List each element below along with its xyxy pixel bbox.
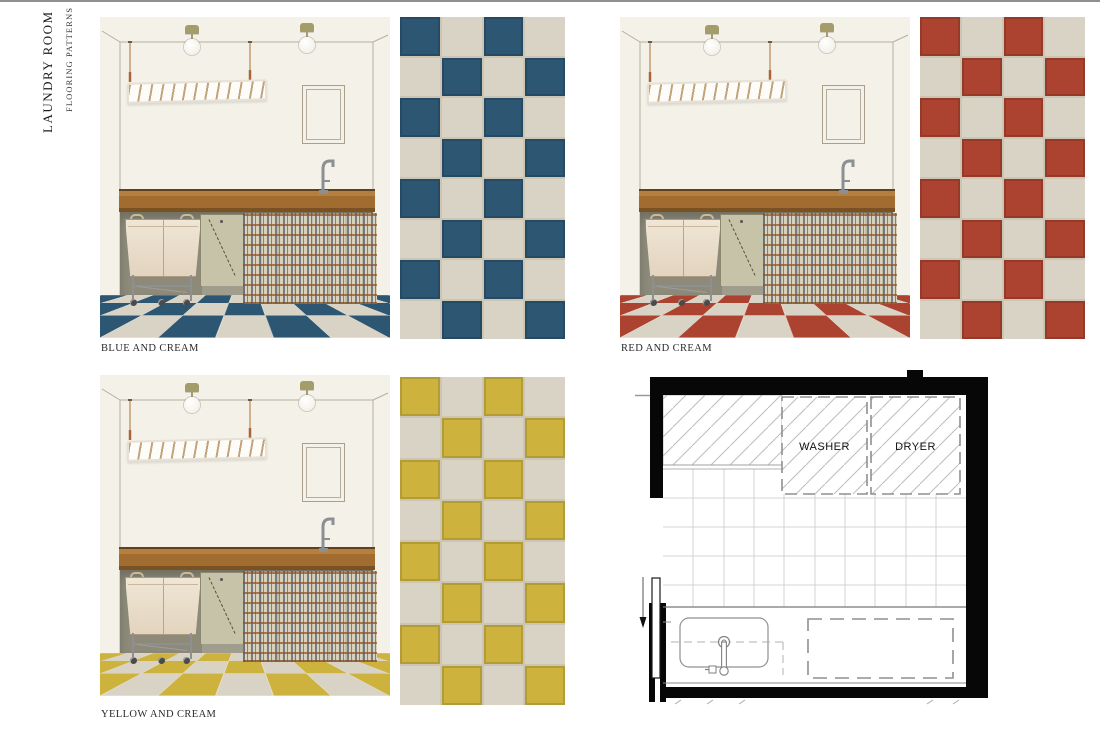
light-globe	[704, 39, 720, 55]
page-title: LAUNDRY ROOM	[40, 10, 56, 133]
cabinet-door	[720, 214, 764, 287]
swatch-tile	[442, 139, 482, 178]
swatch-tile	[484, 418, 524, 457]
cabinet-keyhole	[220, 220, 223, 223]
caster-wheel	[650, 299, 657, 306]
swatch-tile	[1004, 139, 1044, 178]
caster-wheel	[183, 657, 190, 664]
light-globe	[299, 395, 315, 411]
swatch-tile	[442, 220, 482, 259]
picture-frame	[302, 443, 345, 502]
plan-hatch-ticks	[675, 700, 959, 704]
swatch-tile	[525, 501, 565, 540]
caster-wheel	[158, 299, 165, 306]
swatch-tile	[484, 139, 524, 178]
caster-wheel	[130, 299, 137, 306]
light-fixture-cap	[300, 381, 314, 390]
swatch-tile	[525, 17, 565, 56]
presentation-board: LAUNDRY ROOM FLOORING PATTERNS	[0, 0, 1100, 734]
swatch-tile	[962, 17, 1002, 56]
swatch-tile	[442, 418, 482, 457]
plan-cabinet-dashed	[808, 619, 953, 678]
swatch-tile	[442, 625, 482, 664]
swatch-tile	[920, 301, 960, 340]
light-fixture-cap	[820, 23, 834, 32]
under-counter-curtain	[243, 571, 377, 662]
caster-wheel	[183, 299, 190, 306]
swatch-tile	[1045, 17, 1085, 56]
room-rendering-red	[620, 17, 910, 338]
swatch-tile	[400, 139, 440, 178]
hamper-canvas-bag	[645, 219, 721, 277]
swatch-tile	[920, 260, 960, 299]
swatch-tile	[920, 17, 960, 56]
tile-swatch-yellow	[400, 377, 565, 705]
swatch-tile	[525, 666, 565, 705]
swatch-tile	[962, 58, 1002, 97]
swatch-tile	[1004, 301, 1044, 340]
swatch-tile	[400, 625, 440, 664]
swatch-tile	[525, 460, 565, 499]
swatch-tile	[1045, 98, 1085, 137]
ceiling-light	[297, 23, 317, 55]
swatch-tile	[1004, 98, 1044, 137]
swatch-tile	[1004, 260, 1044, 299]
hanging-drying-rack	[127, 437, 267, 462]
swatch-tile	[1045, 139, 1085, 178]
plan-sink	[663, 618, 783, 675]
swatch-tile	[484, 460, 524, 499]
swatch-tile	[442, 179, 482, 218]
swatch-tile	[400, 583, 440, 622]
light-globe	[819, 37, 835, 53]
swatch-tile	[525, 139, 565, 178]
swatch-tile	[400, 501, 440, 540]
under-counter-curtain	[243, 213, 377, 304]
swatch-tile	[442, 542, 482, 581]
light-fixture-cap	[185, 25, 199, 34]
swatch-tile	[484, 179, 524, 218]
ceiling-light	[182, 25, 202, 57]
cabinet-door-swing-line	[208, 577, 235, 634]
swatch-tile	[442, 583, 482, 622]
tile-swatch-blue	[400, 17, 565, 339]
plan-dryer: DRYER	[871, 397, 960, 494]
swatch-tile	[525, 542, 565, 581]
swatch-tile	[442, 98, 482, 137]
faucet	[833, 155, 859, 195]
swatch-tile	[484, 301, 524, 340]
hamper-canvas-bag	[125, 219, 201, 277]
swatch-tile	[484, 220, 524, 259]
washer-label: WASHER	[799, 441, 850, 453]
light-globe	[184, 39, 200, 55]
swatch-tile	[525, 220, 565, 259]
plan-counter-hatched	[663, 395, 782, 469]
plan-washer: WASHER	[782, 397, 867, 494]
hamper-cart-frame	[132, 275, 192, 301]
ceiling-light	[817, 23, 837, 55]
swatch-tile	[400, 98, 440, 137]
swatch-tile	[484, 583, 524, 622]
swatch-tile	[442, 501, 482, 540]
swatch-tile	[1004, 58, 1044, 97]
swatch-tile	[484, 542, 524, 581]
swatch-tile	[400, 666, 440, 705]
swatch-tile	[442, 17, 482, 56]
swatch-tile	[1045, 301, 1085, 340]
light-globe	[299, 37, 315, 53]
ceiling-light	[297, 381, 317, 413]
swatch-tile	[1045, 220, 1085, 259]
cabinet-door	[200, 214, 244, 287]
hamper-canvas-bag	[125, 577, 201, 635]
swatch-tile	[525, 58, 565, 97]
swatch-tile	[442, 460, 482, 499]
swatch-tile	[400, 58, 440, 97]
swatch-tile	[962, 301, 1002, 340]
caster-wheel	[703, 299, 710, 306]
swatch-tile	[400, 418, 440, 457]
swatch-tile	[962, 260, 1002, 299]
cabinet-door-swing-line	[208, 219, 235, 276]
swatch-tile	[484, 625, 524, 664]
swatch-tile	[920, 220, 960, 259]
faucet	[313, 513, 339, 553]
flooring-option-yellow-and-cream: YELLOW AND CREAM	[100, 375, 670, 727]
swatch-tile	[920, 58, 960, 97]
hamper-cart-frame	[132, 633, 192, 659]
cabinet-door	[200, 572, 244, 645]
room-rendering-blue	[100, 17, 390, 338]
swatch-tile	[484, 666, 524, 705]
swatch-tile	[1004, 220, 1044, 259]
swatch-tile	[484, 98, 524, 137]
swatch-tile	[525, 301, 565, 340]
swatch-tile	[1045, 260, 1085, 299]
swatch-tile	[920, 139, 960, 178]
swatch-tile	[525, 625, 565, 664]
swatch-tile	[525, 260, 565, 299]
laundry-hamper	[645, 215, 719, 307]
swatch-tile	[962, 98, 1002, 137]
light-fixture-cap	[705, 25, 719, 34]
swatch-tile	[962, 179, 1002, 218]
swatch-tile	[1045, 179, 1085, 218]
swatch-tile	[525, 583, 565, 622]
dryer-label: DRYER	[895, 441, 936, 453]
laundry-hamper	[125, 215, 199, 307]
swatch-tile	[442, 377, 482, 416]
swatch-tile	[400, 179, 440, 218]
cabinet-door-swing-line	[728, 219, 755, 276]
swatch-tile	[525, 377, 565, 416]
swatch-tile	[484, 17, 524, 56]
tile-swatch-red	[920, 17, 1085, 339]
swatch-tile	[525, 179, 565, 218]
light-globe	[184, 397, 200, 413]
faucet	[313, 155, 339, 195]
swatch-tile	[1004, 179, 1044, 218]
swatch-tile	[484, 58, 524, 97]
swatch-tile	[920, 179, 960, 218]
light-fixture-cap	[300, 23, 314, 32]
option-label: RED AND CREAM	[621, 343, 712, 354]
swatch-tile	[400, 17, 440, 56]
swatch-tile	[962, 220, 1002, 259]
room-rendering-yellow	[100, 375, 390, 696]
swatch-tile	[920, 98, 960, 137]
swatch-tile	[400, 220, 440, 259]
laundry-hamper	[125, 573, 199, 665]
swatch-tile	[525, 98, 565, 137]
under-counter-curtain	[763, 213, 897, 304]
swatch-tile	[442, 301, 482, 340]
flooring-option-red-and-cream: RED AND CREAM	[620, 17, 1100, 369]
light-fixture-cap	[185, 383, 199, 392]
swatch-tile	[400, 260, 440, 299]
swatch-tile	[400, 377, 440, 416]
option-label: BLUE AND CREAM	[101, 343, 199, 354]
swatch-tile	[400, 301, 440, 340]
hanging-drying-rack	[127, 79, 267, 104]
cabinet-keyhole	[740, 220, 743, 223]
swatch-tile	[962, 139, 1002, 178]
swatch-tile	[484, 501, 524, 540]
page-subtitle: FLOORING PATTERNS	[64, 7, 74, 112]
swatch-tile	[484, 260, 524, 299]
swatch-tile	[484, 377, 524, 416]
swatch-tile	[442, 58, 482, 97]
hanging-drying-rack	[647, 79, 787, 104]
caster-wheel	[158, 657, 165, 664]
swatch-tile	[1004, 17, 1044, 56]
cabinet-keyhole	[220, 578, 223, 581]
swatch-tile	[442, 260, 482, 299]
picture-frame	[302, 85, 345, 144]
option-label: YELLOW AND CREAM	[101, 709, 216, 720]
picture-frame	[822, 85, 865, 144]
swatch-tile	[442, 666, 482, 705]
caster-wheel	[130, 657, 137, 664]
caster-wheel	[678, 299, 685, 306]
ceiling-light	[702, 25, 722, 57]
swatch-tile	[1045, 58, 1085, 97]
hamper-cart-frame	[652, 275, 712, 301]
flooring-option-blue-and-cream: BLUE AND CREAM	[100, 17, 670, 369]
ceiling-light	[182, 383, 202, 415]
swatch-tile	[525, 418, 565, 457]
page-top-border	[0, 0, 1100, 2]
laundry-room-floor-plan: WASHER DRYER	[635, 370, 990, 710]
swatch-tile	[400, 460, 440, 499]
swatch-tile	[400, 542, 440, 581]
